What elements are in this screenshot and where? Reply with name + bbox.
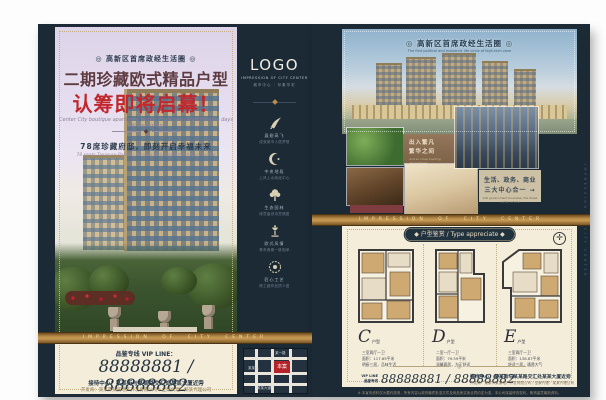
developer-line: 开发商：某某市某某地产开发有限公司 / 全案代理：某某代理公司 — [55, 387, 237, 393]
floor-plan-e-graphic — [501, 248, 563, 324]
bird-icon — [268, 116, 282, 130]
front-top-badge: ◎ 高新区首席政经生活圈 ◎ — [55, 54, 237, 64]
developer-line: 开发商：某某市某某地产开发有限公司 / 全案代理：某某代理公司 — [470, 381, 574, 386]
sidebar-feature: 中央地段 上风上水政经中心 — [237, 152, 312, 181]
garden-graphic — [55, 243, 237, 339]
flower-bed-graphic — [65, 291, 135, 305]
sidebar-feature: 欧式风情 尊贵典雅一脉相承 — [237, 224, 312, 253]
map-road — [244, 357, 307, 360]
aerial-tower-graphic — [442, 53, 476, 111]
floor-plans-section: ◆ 户型鉴赏 / Type appreciate ◆ C户型 三室 — [342, 224, 577, 387]
stone-urn-graphic — [201, 305, 216, 329]
floor-plan-d: D户型 二室一厅一卫 面积：79.59平米 温馨两居，方正舒适 — [423, 244, 497, 366]
gold-ribbon-back: IMPRESSION OF CITY CENTER — [312, 214, 590, 226]
floor-plans-title-pill: ◆ 户型鉴赏 / Type appreciate ◆ — [404, 228, 515, 241]
reception-address: 接待中心：某某街与某某路交汇处某某大厦近旁 — [55, 379, 237, 387]
front-main-title: 二期珍藏欧式精品户型 — [55, 66, 237, 90]
caption-box-centers: 生活、政务、商业 三大中心合一 → Life government busine… — [479, 170, 541, 202]
plan-letter: C — [358, 326, 371, 348]
map-road — [244, 383, 307, 386]
crescent-icon — [268, 152, 282, 166]
map-road-label: 某某大道 — [257, 386, 271, 391]
map-road-label: 某一路 — [275, 351, 286, 356]
lamp-icon — [268, 224, 282, 238]
sidebar-divider — [253, 102, 296, 103]
location-map: 某一路 某某路 某某大道 本案 — [243, 348, 308, 394]
sidebar-feature: 匠心工艺 精工细作品质人居 — [237, 260, 312, 289]
front-launch-line: 认筹即将启幕！ — [55, 88, 237, 117]
brochure-canvas: ◎ 高新区首席政经生活圈 ◎ 二期珍藏欧式精品户型 认筹即将启幕！ Center… — [0, 0, 606, 400]
tree-icon — [268, 188, 282, 202]
vip-line-label: VIP LINE 品鉴专线 — [352, 374, 378, 384]
caption-box-bustle: 出入繁凡 繁华之间 And so close bustling atmosphe… — [403, 134, 455, 165]
sidebar-feature: 展翅高飞 成就城市人居梦想 — [237, 116, 312, 145]
plan-letter: E — [504, 326, 516, 348]
plan-letter: D — [432, 326, 446, 348]
back-contact-row: VIP LINE 品鉴专线 88888881 / 88888882 接待中心：某… — [352, 372, 572, 390]
flyer-front: ◎ 高新区首席政经生活圈 ◎ 二期珍藏欧式精品户型 认筹即将启幕！ Center… — [38, 24, 312, 397]
front-feature-line-en: 78 seats Treasure Palace, immediately op… — [55, 153, 237, 158]
map-site-marker: 本案 — [274, 361, 290, 373]
disclaimer-text: ※ 本宣传资料仅为要约邀请，所有内容以政府最终批准文件及商品房买卖合同约定为准，… — [342, 391, 577, 396]
bush-graphic — [161, 267, 197, 295]
photo-collage: ◎ 高新区首席政经生活圈 ◎ The first political and e… — [342, 29, 577, 214]
ornament-divider: · ◎ · — [342, 364, 577, 370]
reception-address: 接待中心：某某街与某某路交汇处某某大厦近旁 — [470, 373, 571, 380]
interior-photo-dark — [347, 168, 403, 205]
aerial-tower-graphic — [406, 57, 436, 111]
sidebar-feature: 生态园林 绿意盎然诗意栖居 — [237, 188, 312, 217]
floor-plan-c-graphic — [357, 248, 415, 324]
maroon-accent-strip — [350, 205, 403, 213]
gold-ribbon-front: IMPRESSION OF CITY CENTER — [38, 332, 312, 344]
floor-plan-e: ✛ E户型 三室两厅一卫 面积：138.87平米 舒适三 — [496, 244, 568, 366]
evening-building-photo — [455, 107, 538, 168]
front-feature-line: 78席珍藏府邸，即刻开启幸福未来 — [55, 141, 237, 152]
aerial-tower-graphic — [482, 61, 508, 111]
park-photo — [347, 128, 403, 165]
ornament-divider: ◆ — [55, 128, 237, 135]
flyer-back: ◎ 高新区首席政经生活圈 ◎ The first political and e… — [312, 24, 590, 397]
map-road-label: 某某路 — [248, 366, 259, 371]
interior-photo-bright — [405, 164, 477, 219]
back-top-badge: ◎ 高新区首席政经生活圈 ◎ — [342, 38, 577, 49]
floor-plan-d-graphic — [434, 248, 486, 324]
back-top-badge-sub: The first political and economic life ci… — [342, 49, 577, 53]
compass-icon: ✛ — [553, 232, 566, 245]
logo-subtitle-cn: 城市中心 · 印象华宅 — [237, 83, 312, 88]
floor-plan-c: C户型 三室两厅一卫 面积：117.65平米 明厨三居，品味生活 — [350, 244, 422, 366]
aerial-tower-graphic — [376, 63, 402, 111]
logo: LOGO — [237, 56, 312, 74]
logo-subtitle-en: IMPRESSION OF CITY CENTER — [237, 76, 312, 80]
medallion-icon — [268, 260, 282, 274]
